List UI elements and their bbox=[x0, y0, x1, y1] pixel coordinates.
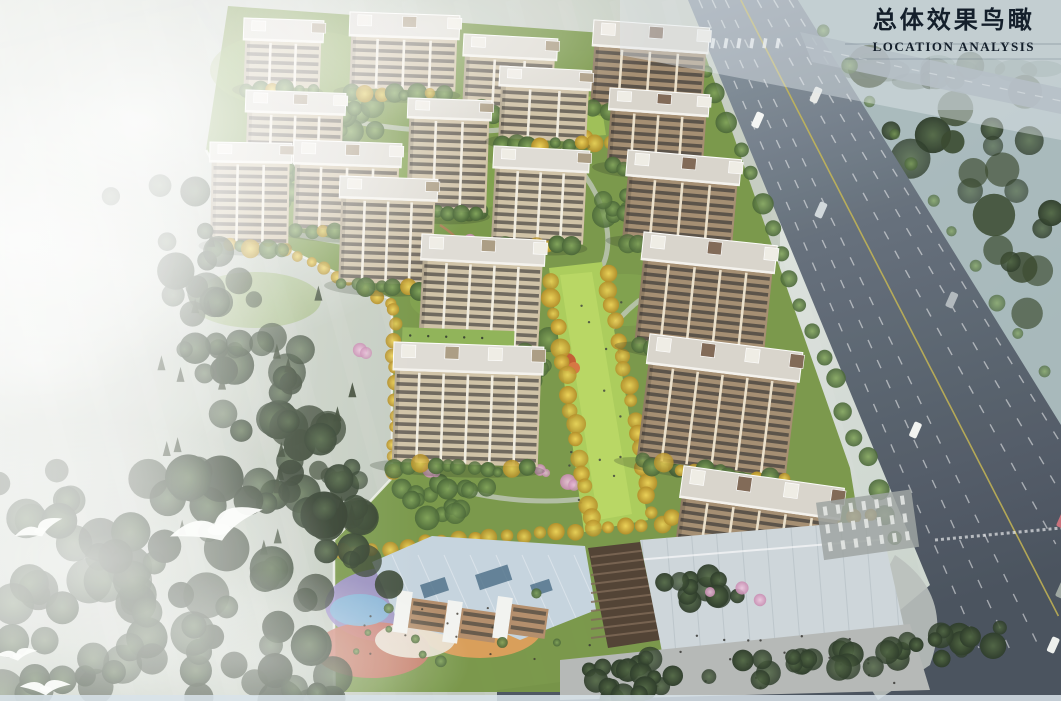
aerial-rendering-page: 总体效果鸟瞰 LOCATION ANALYSIS bbox=[0, 0, 1061, 701]
mist bbox=[0, 0, 1061, 701]
aerial-rendering bbox=[0, 0, 1061, 701]
bottom-edge-strip bbox=[0, 695, 1061, 701]
